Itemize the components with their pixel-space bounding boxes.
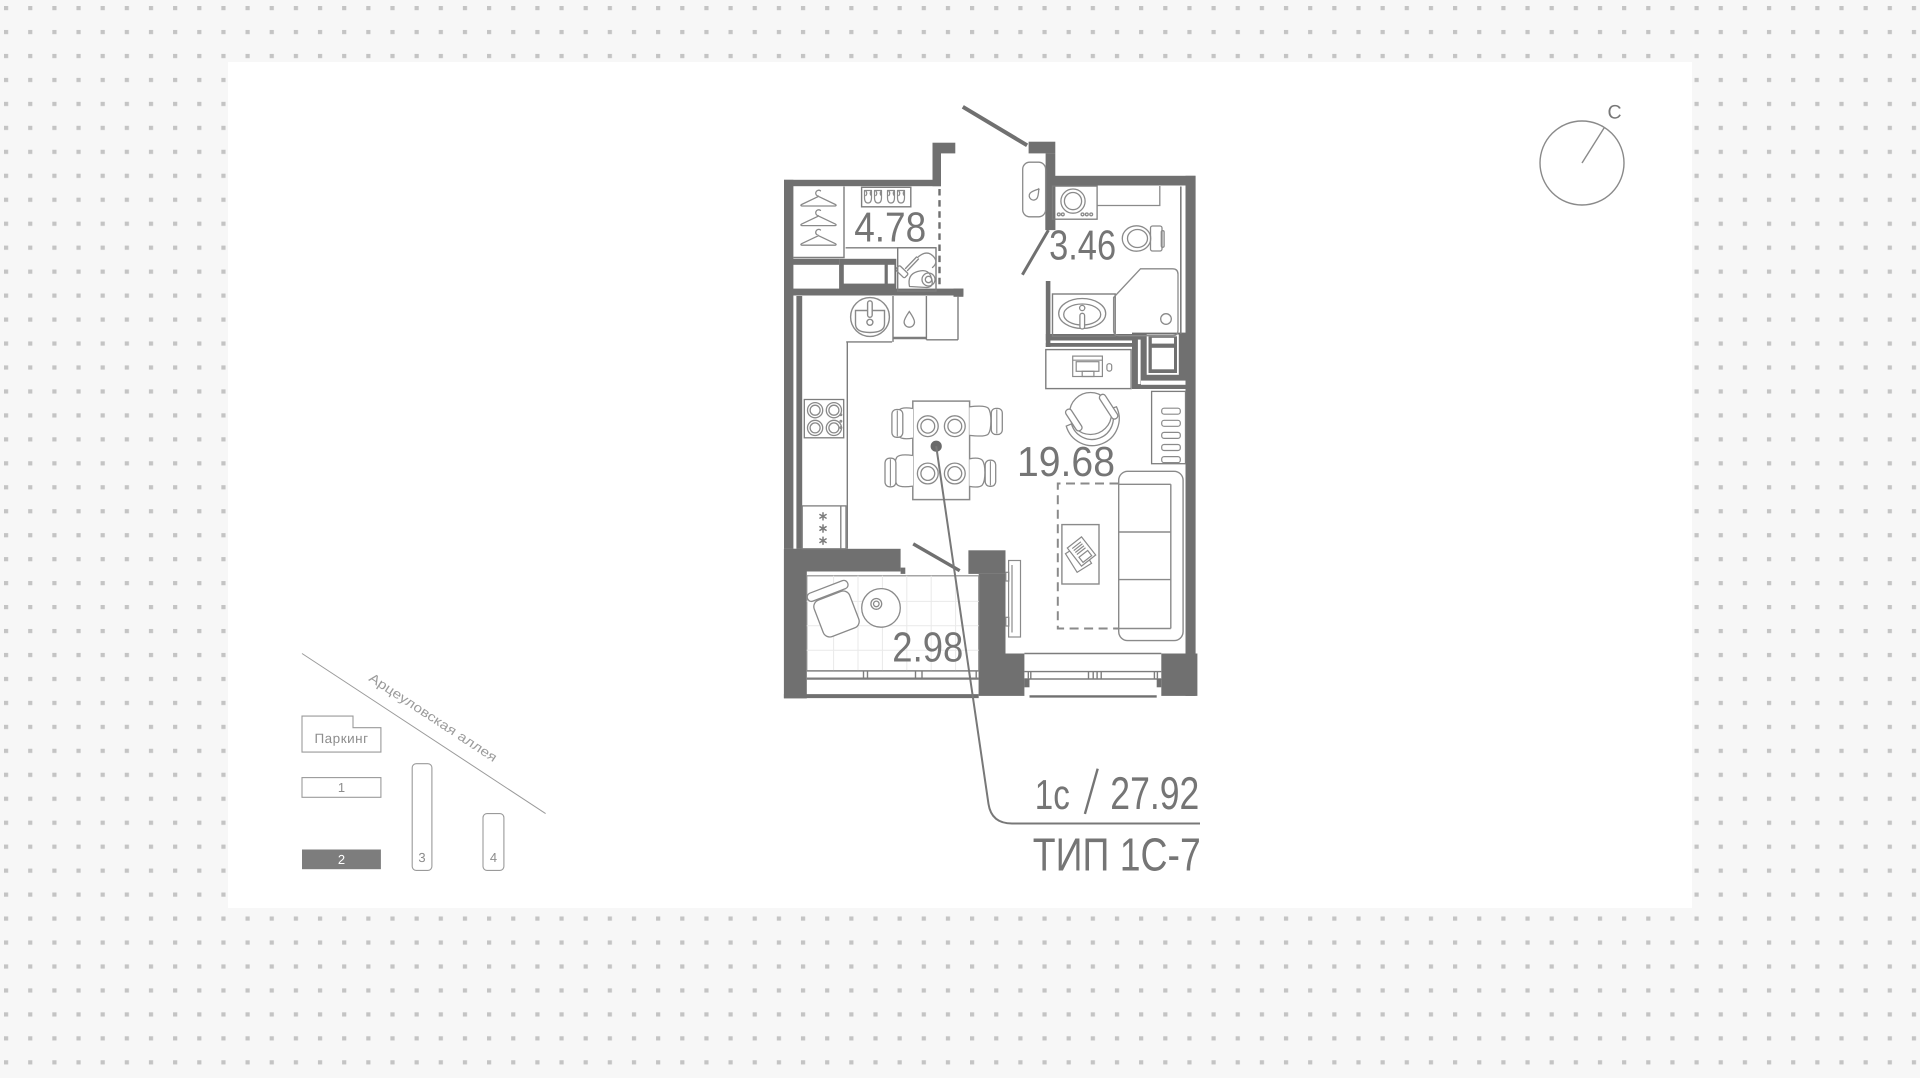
svg-text:2.98: 2.98 <box>892 623 963 670</box>
svg-text:С: С <box>1607 102 1621 124</box>
svg-text:4.78: 4.78 <box>854 204 926 251</box>
svg-text:3: 3 <box>418 850 425 865</box>
svg-text:1с: 1с <box>1035 771 1070 818</box>
svg-text:Паркинг: Паркинг <box>314 731 368 746</box>
svg-text:4: 4 <box>490 850 497 865</box>
svg-text:27.92: 27.92 <box>1110 767 1199 819</box>
svg-text:3.46: 3.46 <box>1049 222 1116 269</box>
svg-text:ТИП 1С-7: ТИП 1С-7 <box>1033 828 1201 880</box>
svg-text:2: 2 <box>338 852 345 867</box>
svg-text:1: 1 <box>338 780 345 795</box>
